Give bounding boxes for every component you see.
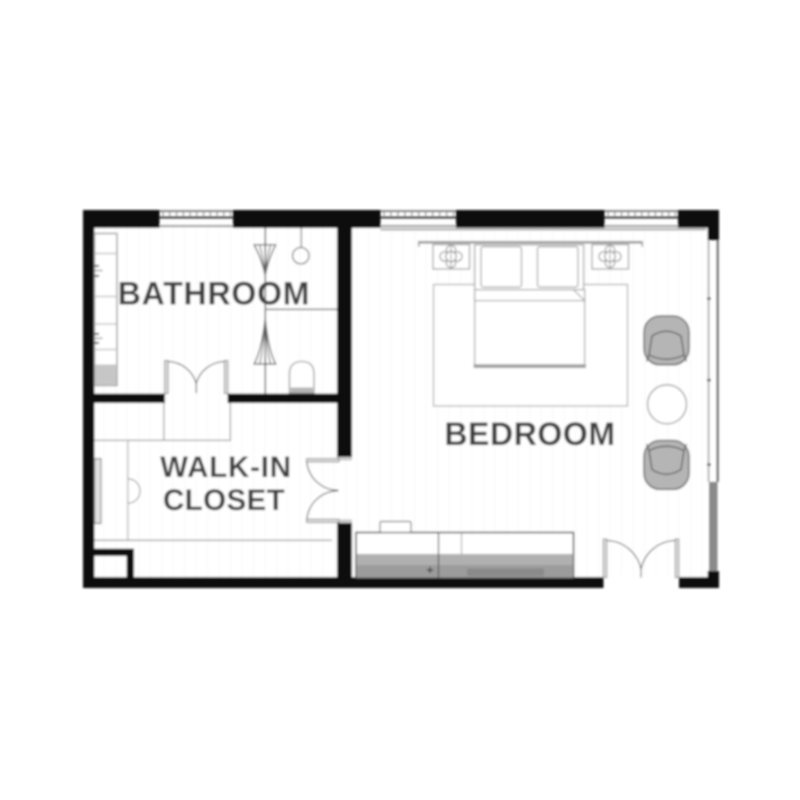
svg-text:CLOSET: CLOSET [163,484,285,517]
svg-text:BATHROOM: BATHROOM [118,276,310,312]
svg-text:BEDROOM: BEDROOM [444,416,615,452]
svg-text:WALK-IN: WALK-IN [160,451,292,484]
